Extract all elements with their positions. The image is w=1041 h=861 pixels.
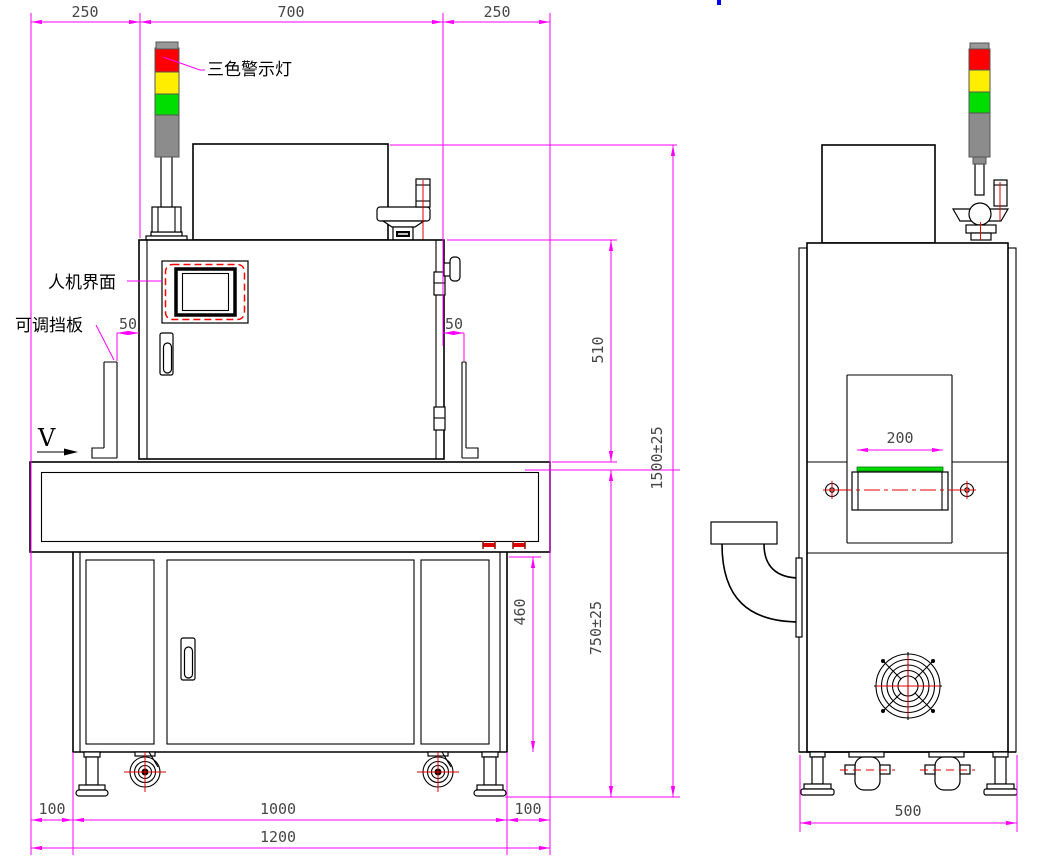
tower-cap xyxy=(970,43,989,49)
view-direction-label: V xyxy=(37,424,56,452)
tower-green-light xyxy=(155,94,179,115)
hmi-screen-frame xyxy=(176,269,235,315)
front-feet-casters xyxy=(76,752,506,796)
front-upper-housing xyxy=(193,144,388,240)
tower-gray-body xyxy=(155,115,179,157)
tower-green-light xyxy=(969,92,990,113)
hmi-panel xyxy=(162,261,248,323)
hmi-label: 人机界面 xyxy=(48,273,116,293)
dim-top-left-250: 250 xyxy=(71,3,98,21)
dim-1500-25: 1500±25 xyxy=(648,426,666,489)
tower-gray-body xyxy=(969,113,990,157)
belt-surface xyxy=(857,467,943,471)
roller xyxy=(852,472,948,510)
tower-light-label: 三色警示灯 xyxy=(207,60,292,80)
dim-500: 500 xyxy=(894,802,921,820)
cad-drawing-canvas: V xyxy=(0,0,1041,861)
dim-510: 510 xyxy=(589,336,607,363)
enclosure-door-handle xyxy=(160,333,173,375)
side-feet-casters xyxy=(801,752,1017,795)
front-tower-light-icon xyxy=(146,42,187,240)
dim-top-right-250: 250 xyxy=(483,3,510,21)
dim-460: 460 xyxy=(511,598,529,625)
fan-grille-icon xyxy=(874,652,942,720)
cabinet-right-panel xyxy=(421,560,489,744)
conveyor-table xyxy=(30,462,550,552)
dim-top-700: 700 xyxy=(277,3,304,21)
left-adjustable-baffle xyxy=(92,362,117,458)
side-upper-housing xyxy=(822,145,935,243)
tower-cap xyxy=(156,42,178,49)
baffle-label: 可调挡板 xyxy=(15,316,83,336)
dim-left-50: 50 xyxy=(119,315,137,333)
front-main-enclosure xyxy=(139,240,460,459)
dim-right-50: 50 xyxy=(445,315,463,333)
side-knob-icon xyxy=(444,257,460,281)
caster-wheel-icon xyxy=(124,752,459,792)
side-tower-light-icon xyxy=(953,43,1008,240)
dim-1200: 1200 xyxy=(260,828,296,846)
tower-red-light xyxy=(969,49,990,70)
dim-bottom-left-100: 100 xyxy=(38,800,65,818)
cabinet-door-handle xyxy=(181,638,195,680)
dim-1000: 1000 xyxy=(260,800,296,818)
dim-bottom-right-100: 100 xyxy=(514,800,541,818)
dim-200: 200 xyxy=(886,429,913,447)
tower-red-light xyxy=(155,48,179,72)
blue-mark xyxy=(717,0,721,5)
cabinet-door xyxy=(167,560,414,744)
view-arrow-icon xyxy=(64,449,78,456)
lower-cabinet xyxy=(73,552,507,752)
exhaust-duct xyxy=(711,522,802,637)
sensor-assembly xyxy=(377,179,430,240)
front-view: V xyxy=(30,42,550,796)
dim-750-25: 750±25 xyxy=(587,601,605,655)
tower-yellow-light xyxy=(155,72,179,94)
leveling-foot-icon xyxy=(76,752,506,796)
right-adjustable-baffle xyxy=(462,362,478,458)
side-view xyxy=(711,43,1017,795)
view-direction: V xyxy=(37,424,78,456)
side-caster-icon xyxy=(840,752,975,790)
cabinet-left-panel xyxy=(86,560,154,744)
machine-drawing: V xyxy=(0,0,1041,861)
tower-yellow-light xyxy=(969,70,990,92)
